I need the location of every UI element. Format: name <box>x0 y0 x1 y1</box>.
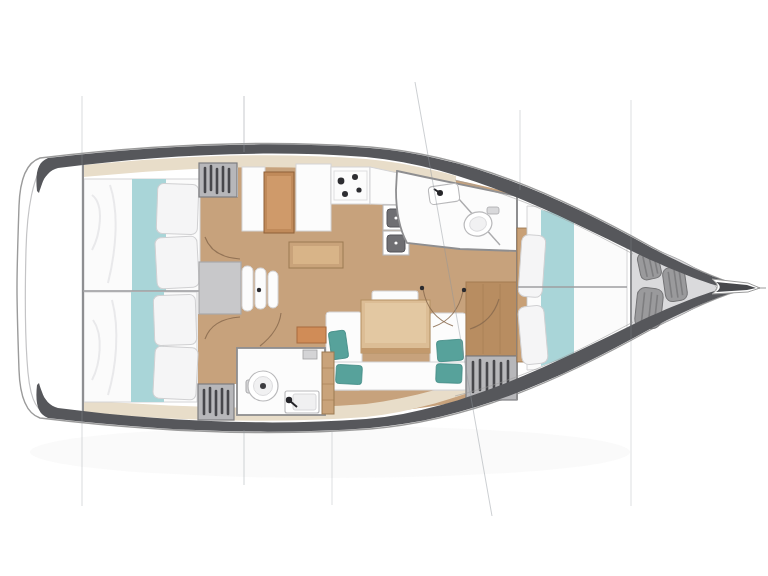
yacht-floorplan-canvas <box>0 0 768 576</box>
pillow <box>155 236 200 289</box>
side-stool <box>297 327 326 343</box>
galley-island <box>289 242 343 268</box>
pillow <box>153 346 199 400</box>
hanging-locker-aft-port <box>199 163 237 197</box>
nav-station <box>264 172 294 233</box>
head-aft <box>237 348 334 415</box>
hull-shadow <box>30 426 630 478</box>
door-hinge <box>257 288 261 292</box>
hanging-locker-aft-starboard <box>198 384 234 420</box>
cushion <box>436 364 463 384</box>
burner <box>356 187 361 192</box>
aft-cabin-port-floor <box>199 197 242 262</box>
companionway-landing <box>199 262 241 314</box>
burner <box>342 191 348 197</box>
step <box>242 266 253 311</box>
saloon-table <box>361 300 430 353</box>
sink-forward <box>428 183 460 205</box>
galley-cabinet <box>242 167 265 231</box>
cushion <box>436 339 463 362</box>
door-hinge <box>462 288 466 292</box>
pillow <box>518 234 546 298</box>
aft-cabin-starboard-floor <box>198 314 242 384</box>
yacht-interior-floorplan <box>0 0 768 576</box>
burner <box>338 178 345 185</box>
pillow <box>518 305 549 365</box>
step <box>268 271 278 308</box>
stove <box>331 167 370 204</box>
fridge-cabinet <box>296 164 331 231</box>
forward-cabin-chest <box>466 282 517 356</box>
burner <box>352 174 358 180</box>
bowsprit <box>712 279 766 294</box>
head-aft-vent <box>303 350 317 359</box>
pillow <box>156 183 199 234</box>
head-aft-shelf <box>322 352 334 414</box>
pillow <box>153 294 197 345</box>
cushion <box>335 364 362 384</box>
door-hinge <box>420 286 424 290</box>
sink-aft <box>285 391 319 413</box>
